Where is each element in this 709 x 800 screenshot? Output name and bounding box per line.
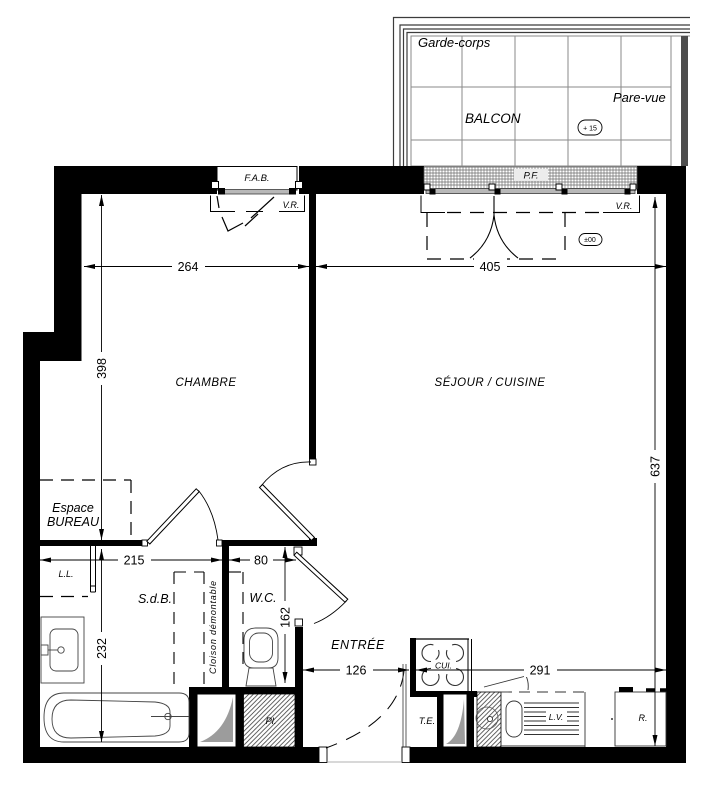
svg-text:L.L.: L.L. — [58, 569, 73, 579]
svg-text:SÉJOUR / CUISINE: SÉJOUR / CUISINE — [435, 376, 546, 389]
svg-text:P.F.: P.F. — [524, 171, 539, 182]
svg-text:264: 264 — [178, 260, 199, 274]
svg-text:W.C.: W.C. — [249, 591, 276, 605]
svg-text:215: 215 — [124, 554, 145, 568]
svg-text:BALCON: BALCON — [465, 111, 521, 126]
svg-text:CUI.: CUI. — [435, 661, 452, 671]
svg-text:291: 291 — [530, 664, 551, 678]
svg-text:S.d.B.: S.d.B. — [138, 592, 172, 606]
svg-text:405: 405 — [480, 260, 501, 274]
svg-text:162: 162 — [279, 607, 293, 628]
svg-text:R.: R. — [639, 713, 648, 723]
svg-text:±00: ±00 — [584, 237, 596, 244]
svg-text:Garde-corps: Garde-corps — [418, 35, 491, 50]
svg-text:F.A.B.: F.A.B. — [244, 173, 269, 184]
svg-text:ENTRÉE: ENTRÉE — [331, 637, 385, 652]
svg-text:232: 232 — [95, 638, 109, 659]
svg-text:V.R.: V.R. — [616, 201, 633, 211]
svg-text:L.V.: L.V. — [549, 712, 564, 722]
svg-text:V.R.: V.R. — [283, 200, 300, 210]
svg-text:CHAMBRE: CHAMBRE — [175, 377, 236, 389]
svg-text:Espace: Espace — [52, 501, 94, 515]
svg-text:T.E.: T.E. — [419, 716, 436, 727]
svg-text:398: 398 — [95, 358, 109, 379]
svg-text:Cloison démontable: Cloison démontable — [208, 580, 218, 674]
svg-text:Pare-vue: Pare-vue — [613, 90, 666, 105]
svg-text:BUREAU: BUREAU — [47, 515, 100, 529]
svg-text:Pl.: Pl. — [265, 716, 276, 727]
svg-text:80: 80 — [254, 554, 268, 568]
svg-text:637: 637 — [649, 456, 663, 477]
svg-text:126: 126 — [346, 664, 367, 678]
svg-text:+ 15: + 15 — [583, 126, 597, 133]
